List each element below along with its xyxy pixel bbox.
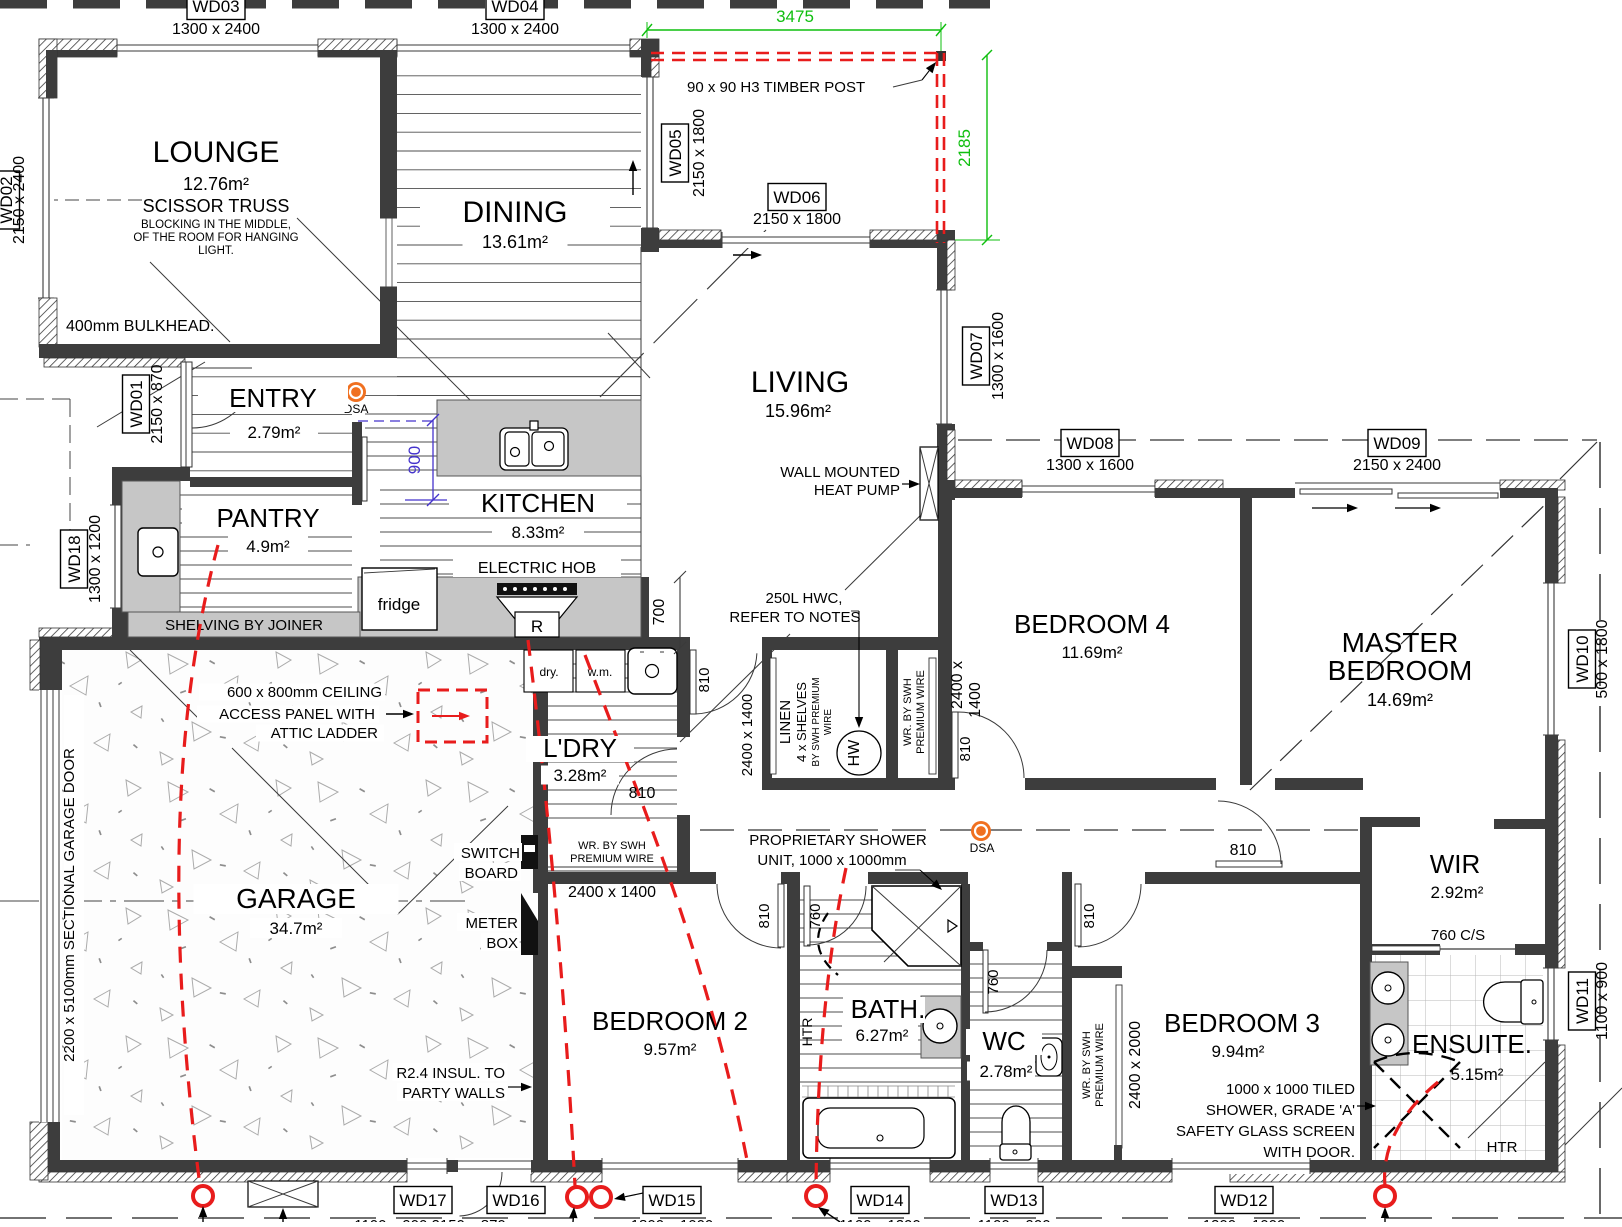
svg-text:HTR: HTR [1487, 1139, 1518, 1156]
svg-text:14.69m²: 14.69m² [1367, 690, 1433, 710]
svg-text:DSA: DSA [970, 841, 995, 855]
svg-text:810: 810 [1230, 842, 1257, 859]
svg-text:WD08: WD08 [1066, 434, 1113, 453]
svg-text:700: 700 [651, 599, 668, 626]
svg-text:WIR: WIR [1430, 849, 1481, 879]
svg-text:1300 x 1200: 1300 x 1200 [87, 515, 104, 603]
svg-text:400mm BULKHEAD.: 400mm BULKHEAD. [66, 318, 215, 335]
svg-text:ENTRY: ENTRY [229, 383, 317, 413]
svg-text:8.33m²: 8.33m² [512, 523, 565, 542]
svg-text:WC: WC [982, 1026, 1025, 1056]
svg-text:13.61m²: 13.61m² [482, 232, 548, 252]
svg-text:2.92m²: 2.92m² [1431, 883, 1484, 902]
svg-text:810: 810 [756, 903, 773, 928]
svg-text:810: 810 [1081, 903, 1098, 928]
svg-text:2.79m²: 2.79m² [248, 423, 301, 442]
svg-text:WD15: WD15 [648, 1191, 695, 1210]
svg-text:WD03: WD03 [192, 0, 239, 16]
svg-text:PREMIUM WIRE: PREMIUM WIRE [915, 670, 927, 754]
svg-text:ACCESS PANEL WITH: ACCESS PANEL WITH [219, 706, 375, 723]
svg-text:R2.4 INSUL. TO: R2.4 INSUL. TO [396, 1065, 505, 1082]
svg-text:KITCHEN: KITCHEN [481, 488, 595, 518]
svg-text:5.15m²: 5.15m² [1451, 1065, 1504, 1084]
svg-text:SHELVING BY JOINER: SHELVING BY JOINER [165, 617, 323, 634]
svg-text:2400 x: 2400 x [949, 661, 966, 709]
svg-text:1100 x 900 2150 x 870: 1100 x 900 2150 x 870 [354, 1217, 506, 1222]
svg-text:34.7m²: 34.7m² [270, 919, 323, 938]
svg-text:500 x 1800: 500 x 1800 [1594, 619, 1611, 698]
svg-text:2.78m²: 2.78m² [980, 1062, 1033, 1081]
svg-text:HW: HW [846, 739, 863, 767]
svg-text:REFER TO NOTES: REFER TO NOTES [729, 609, 860, 626]
svg-text:OF THE ROOM FOR HANGING: OF THE ROOM FOR HANGING [133, 232, 298, 244]
svg-text:PREMIUM WIRE: PREMIUM WIRE [1094, 1023, 1106, 1107]
svg-text:WD05: WD05 [666, 129, 685, 176]
svg-text:WD18: WD18 [65, 535, 84, 582]
svg-text:2400 x 1400: 2400 x 1400 [568, 884, 656, 901]
svg-text:1100 x 1200: 1100 x 1200 [839, 1217, 920, 1222]
svg-text:2150 x 2400: 2150 x 2400 [1353, 457, 1441, 474]
svg-text:LINEN: LINEN [777, 700, 794, 744]
svg-text:1100 x 900: 1100 x 900 [1594, 962, 1611, 1040]
svg-text:2150 x 1800: 2150 x 1800 [691, 109, 708, 197]
svg-text:15.96m²: 15.96m² [765, 401, 831, 421]
svg-text:2185: 2185 [955, 129, 974, 167]
svg-text:760 C/S: 760 C/S [1431, 927, 1485, 944]
svg-text:WD09: WD09 [1373, 434, 1420, 453]
svg-text:1400: 1400 [967, 682, 984, 718]
svg-text:12.76m²: 12.76m² [183, 174, 249, 194]
svg-text:4 x SHELVES: 4 x SHELVES [794, 682, 809, 762]
svg-text:dry.: dry. [539, 665, 558, 679]
svg-text:UNIT, 1000 x 1000mm: UNIT, 1000 x 1000mm [757, 852, 906, 869]
svg-text:2400 x 2000: 2400 x 2000 [1127, 1021, 1144, 1109]
svg-text:WD16: WD16 [492, 1191, 539, 1210]
svg-text:WD06: WD06 [773, 188, 820, 207]
svg-text:WR. BY SWH: WR. BY SWH [578, 840, 646, 852]
svg-text:BY SWH PREMIUM: BY SWH PREMIUM [811, 677, 822, 766]
svg-text:3475: 3475 [776, 7, 814, 26]
svg-text:WITH DOOR.: WITH DOOR. [1263, 1144, 1355, 1161]
svg-text:WD12: WD12 [1220, 1191, 1267, 1210]
svg-text:1000 x 1000 TILED: 1000 x 1000 TILED [1226, 1081, 1355, 1098]
svg-text:WD11: WD11 [1573, 978, 1592, 1024]
svg-text:WD04: WD04 [491, 0, 538, 16]
svg-text:BEDROOM 2: BEDROOM 2 [592, 1006, 748, 1036]
svg-text:1200 x 1000: 1200 x 1000 [1203, 1217, 1286, 1222]
svg-text:2400 x 1400: 2400 x 1400 [739, 694, 756, 777]
svg-text:1300 x 2400: 1300 x 2400 [172, 21, 260, 38]
svg-text:WIRE: WIRE [823, 709, 834, 735]
svg-text:DINING: DINING [463, 196, 568, 229]
svg-text:HTR: HTR [799, 1018, 815, 1047]
svg-text:810: 810 [957, 736, 974, 761]
svg-text:LOUNGE: LOUNGE [153, 136, 280, 169]
svg-text:810: 810 [696, 667, 713, 692]
svg-text:2150 x 870: 2150 x 870 [149, 364, 166, 443]
svg-text:WALL MOUNTED: WALL MOUNTED [780, 464, 900, 481]
svg-text:9.57m²: 9.57m² [644, 1040, 697, 1059]
svg-text:WR. BY SWH: WR. BY SWH [1081, 1031, 1093, 1099]
svg-text:BEDROOM: BEDROOM [1328, 655, 1473, 686]
svg-text:BATH.: BATH. [851, 994, 926, 1024]
svg-text:WD17: WD17 [399, 1191, 446, 1210]
svg-text:BLOCKING IN THE MIDDLE,: BLOCKING IN THE MIDDLE, [141, 219, 291, 231]
svg-text:WD10: WD10 [1573, 635, 1592, 682]
svg-text:L'DRY: L'DRY [543, 733, 617, 763]
svg-text:1300 x 2400: 1300 x 2400 [471, 21, 559, 38]
svg-text:WD14: WD14 [856, 1191, 903, 1210]
svg-text:6.27m²: 6.27m² [856, 1026, 909, 1045]
svg-text:BOARD: BOARD [465, 865, 519, 882]
svg-text:PARTY WALLS: PARTY WALLS [402, 1085, 505, 1102]
svg-text:ENSUITE.: ENSUITE. [1412, 1029, 1532, 1059]
svg-text:900: 900 [405, 446, 424, 474]
svg-text:ATTIC LADDER: ATTIC LADDER [271, 725, 378, 742]
svg-text:WD13: WD13 [990, 1191, 1037, 1210]
svg-text:WD07: WD07 [967, 332, 986, 379]
svg-text:1800 x 1000: 1800 x 1000 [631, 1217, 714, 1222]
svg-text:3.28m²: 3.28m² [554, 766, 607, 785]
svg-text:760: 760 [807, 903, 824, 928]
svg-text:1100 x 900: 1100 x 900 [977, 1217, 1050, 1222]
svg-text:2150 x 1800: 2150 x 1800 [753, 211, 841, 228]
svg-text:GARAGE: GARAGE [236, 883, 356, 914]
svg-text:BEDROOM 3: BEDROOM 3 [1164, 1008, 1320, 1038]
svg-text:2200 x 5100mm SECTIONAL GARAGE: 2200 x 5100mm SECTIONAL GARAGE DOOR [61, 748, 78, 1062]
svg-text:PANTRY: PANTRY [216, 503, 319, 533]
svg-text:PREMIUM WIRE: PREMIUM WIRE [570, 853, 654, 865]
svg-text:WR. BY SWH: WR. BY SWH [902, 678, 914, 746]
svg-text:BEDROOM 4: BEDROOM 4 [1014, 609, 1170, 639]
svg-text:SHOWER, GRADE 'A': SHOWER, GRADE 'A' [1206, 1102, 1355, 1119]
svg-text:9.94m²: 9.94m² [1212, 1042, 1265, 1061]
svg-text:2150 x 2400: 2150 x 2400 [11, 156, 28, 244]
svg-text:250L HWC,: 250L HWC, [766, 590, 843, 607]
svg-text:R: R [531, 617, 543, 636]
svg-text:90 x 90 H3 TIMBER POST: 90 x 90 H3 TIMBER POST [687, 79, 865, 96]
svg-text:ELECTRIC HOB: ELECTRIC HOB [478, 560, 596, 577]
svg-text:WD01: WD01 [127, 380, 146, 427]
svg-text:LIGHT.: LIGHT. [198, 245, 234, 257]
svg-text:11.69m²: 11.69m² [1061, 643, 1122, 662]
svg-text:810: 810 [629, 785, 656, 802]
svg-text:1300 x 1600: 1300 x 1600 [1046, 457, 1134, 474]
svg-text:BOX: BOX [486, 935, 518, 952]
svg-text:1300 x 1600: 1300 x 1600 [990, 312, 1007, 400]
svg-text:fridge: fridge [378, 595, 421, 614]
svg-text:SAFETY GLASS SCREEN: SAFETY GLASS SCREEN [1176, 1123, 1355, 1140]
svg-text:LIVING: LIVING [751, 366, 849, 399]
svg-text:MASTER: MASTER [1342, 627, 1459, 658]
svg-text:HEAT PUMP: HEAT PUMP [814, 482, 900, 499]
svg-text:760: 760 [985, 969, 1002, 994]
svg-text:METER: METER [466, 915, 519, 932]
svg-text:600 x 800mm CEILING: 600 x 800mm CEILING [227, 684, 382, 701]
svg-text:4.9m²: 4.9m² [246, 537, 290, 556]
svg-text:SCISSOR TRUSS: SCISSOR TRUSS [143, 196, 290, 216]
svg-text:SWITCH: SWITCH [461, 845, 520, 862]
svg-text:PROPRIETARY SHOWER: PROPRIETARY SHOWER [749, 832, 927, 849]
